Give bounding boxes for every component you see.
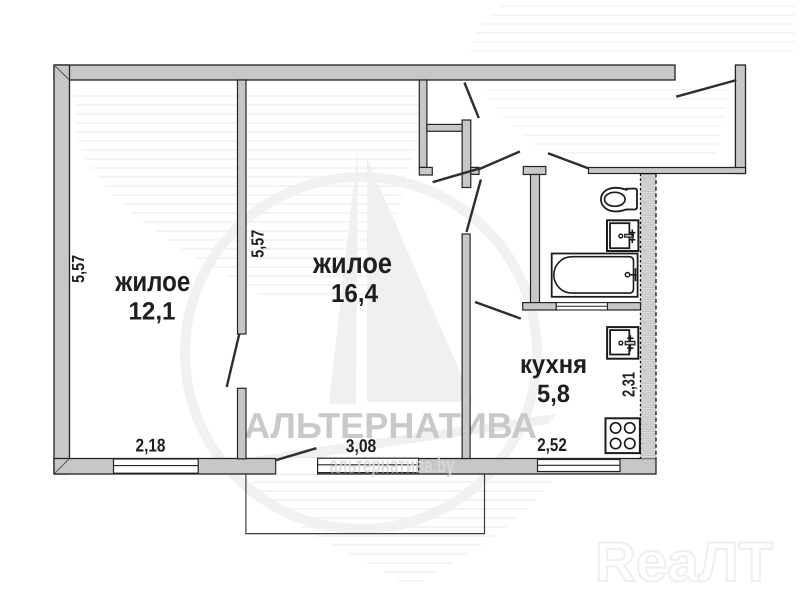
- svg-text:16,4: 16,4: [331, 278, 378, 308]
- svg-text:5,8: 5,8: [537, 380, 570, 408]
- svg-text:5,57: 5,57: [68, 255, 88, 283]
- svg-text:12,1: 12,1: [129, 298, 176, 326]
- svg-text:альтернатива.by: альтернатива.by: [330, 453, 456, 478]
- svg-text:кухня: кухня: [520, 349, 587, 379]
- svg-text:ReaЛТ: ReaЛТ: [595, 530, 773, 593]
- svg-text:АЛЬТЕРНАТИВА: АЛЬТЕРНАТИВА: [244, 405, 537, 446]
- svg-text:2,31: 2,31: [618, 372, 638, 397]
- svg-text:2,52: 2,52: [537, 434, 567, 455]
- svg-text:жилое: жилое: [312, 248, 392, 280]
- svg-text:5,57: 5,57: [248, 230, 268, 258]
- svg-text:2,18: 2,18: [136, 435, 166, 456]
- svg-text:жилое: жилое: [114, 266, 190, 297]
